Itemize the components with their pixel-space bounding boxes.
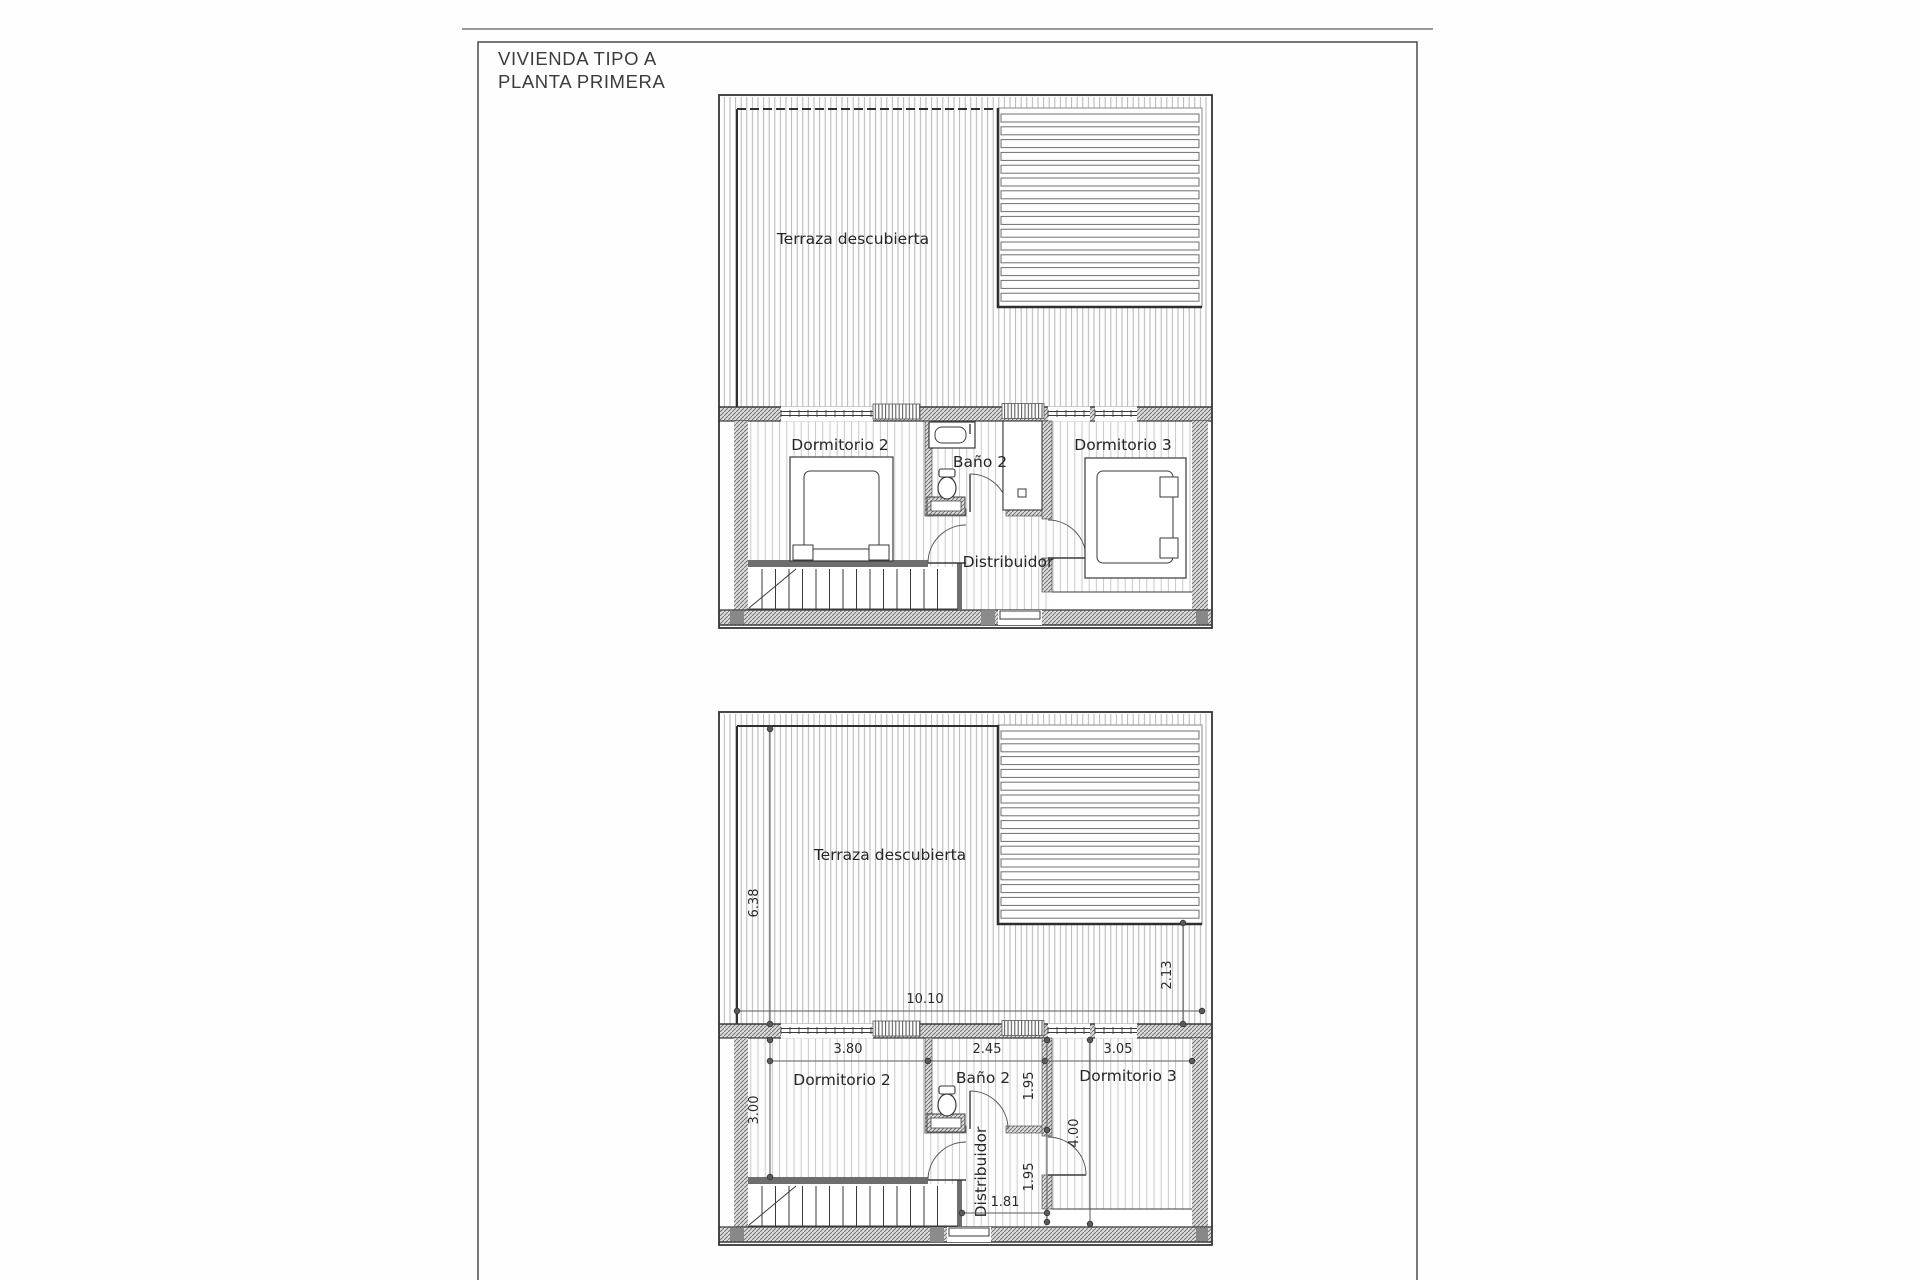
dimension-label-terrace_width: 10.10	[906, 992, 943, 1007]
room-label-distribuidor: Distribuidor	[963, 553, 1054, 571]
floor-plan-bottom: Terraza descubiertaDormitorio 2Baño 2Dor…	[719, 712, 1212, 1245]
room-label-distribuidor: Distribuidor	[972, 1126, 990, 1217]
room-label-dorm2: Dormitorio 2	[793, 1071, 890, 1089]
dimension-label-dorm3_depth: 4.00	[1067, 1119, 1082, 1148]
room-label-bano: Baño 2	[956, 1069, 1010, 1087]
dimension-label-dorm3_width: 3.05	[1104, 1042, 1133, 1057]
dimension-label-dorm2_depth: 3.00	[747, 1096, 762, 1125]
dimension-label-terrace_height: 6.38	[747, 889, 762, 918]
room-label-dorm3: Dormitorio 3	[1079, 1067, 1176, 1085]
dimension-label-distribuidor_width: 1.81	[991, 1195, 1020, 1210]
dimension-label-bano_width: 2.45	[973, 1042, 1002, 1057]
floor-plan-drawing: VIVIENDA TIPO A PLANTA PRIMERA Terraza d…	[0, 0, 1920, 1280]
sheet-title-line2: PLANTA PRIMERA	[498, 71, 665, 92]
floor-plan-top: Terraza descubiertaDormitorio 2Baño 2Dor…	[719, 95, 1212, 628]
room-label-bano: Baño 2	[953, 453, 1007, 471]
dimension-label-distribuidor_depth: 1.95	[1022, 1163, 1037, 1192]
room-label-terraza: Terraza descubierta	[813, 846, 966, 864]
scanned-sheet: VIVIENDA TIPO A PLANTA PRIMERA Terraza d…	[0, 0, 1920, 1280]
dimension-label-terrace_right_depth: 2.13	[1160, 961, 1175, 990]
dimension-label-bano_depth: 1.95	[1022, 1072, 1037, 1101]
sheet-title-line1: VIVIENDA TIPO A	[498, 48, 657, 69]
room-label-terraza: Terraza descubierta	[776, 230, 929, 248]
room-label-dorm3: Dormitorio 3	[1074, 436, 1171, 454]
dimension-label-dorm2_width: 3.80	[834, 1042, 863, 1057]
room-label-dorm2: Dormitorio 2	[791, 436, 888, 454]
